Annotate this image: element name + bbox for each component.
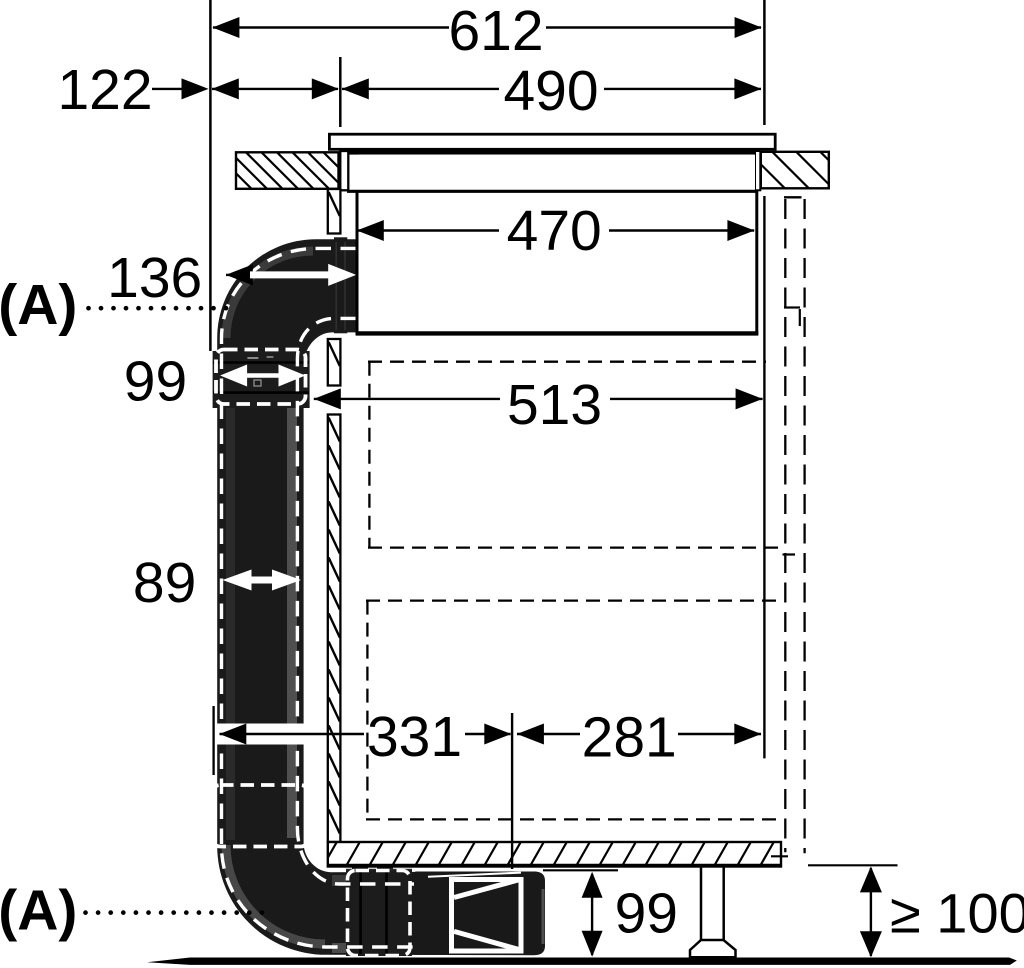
svg-text:136: 136 [107,246,202,310]
svg-text:89: 89 [133,551,196,615]
svg-text:≥ 100: ≥ 100 [890,881,1024,944]
svg-text:(A): (A) [0,879,77,943]
svg-text:122: 122 [57,58,152,122]
svg-text:490: 490 [503,59,598,123]
svg-text:331: 331 [367,705,462,769]
svg-text:281: 281 [582,705,677,769]
svg-text:99: 99 [124,349,187,413]
svg-text:(A): (A) [0,273,77,337]
svg-text:513: 513 [507,373,602,437]
svg-text:612: 612 [448,0,543,63]
svg-text:470: 470 [507,199,602,263]
svg-text:99: 99 [615,882,678,946]
